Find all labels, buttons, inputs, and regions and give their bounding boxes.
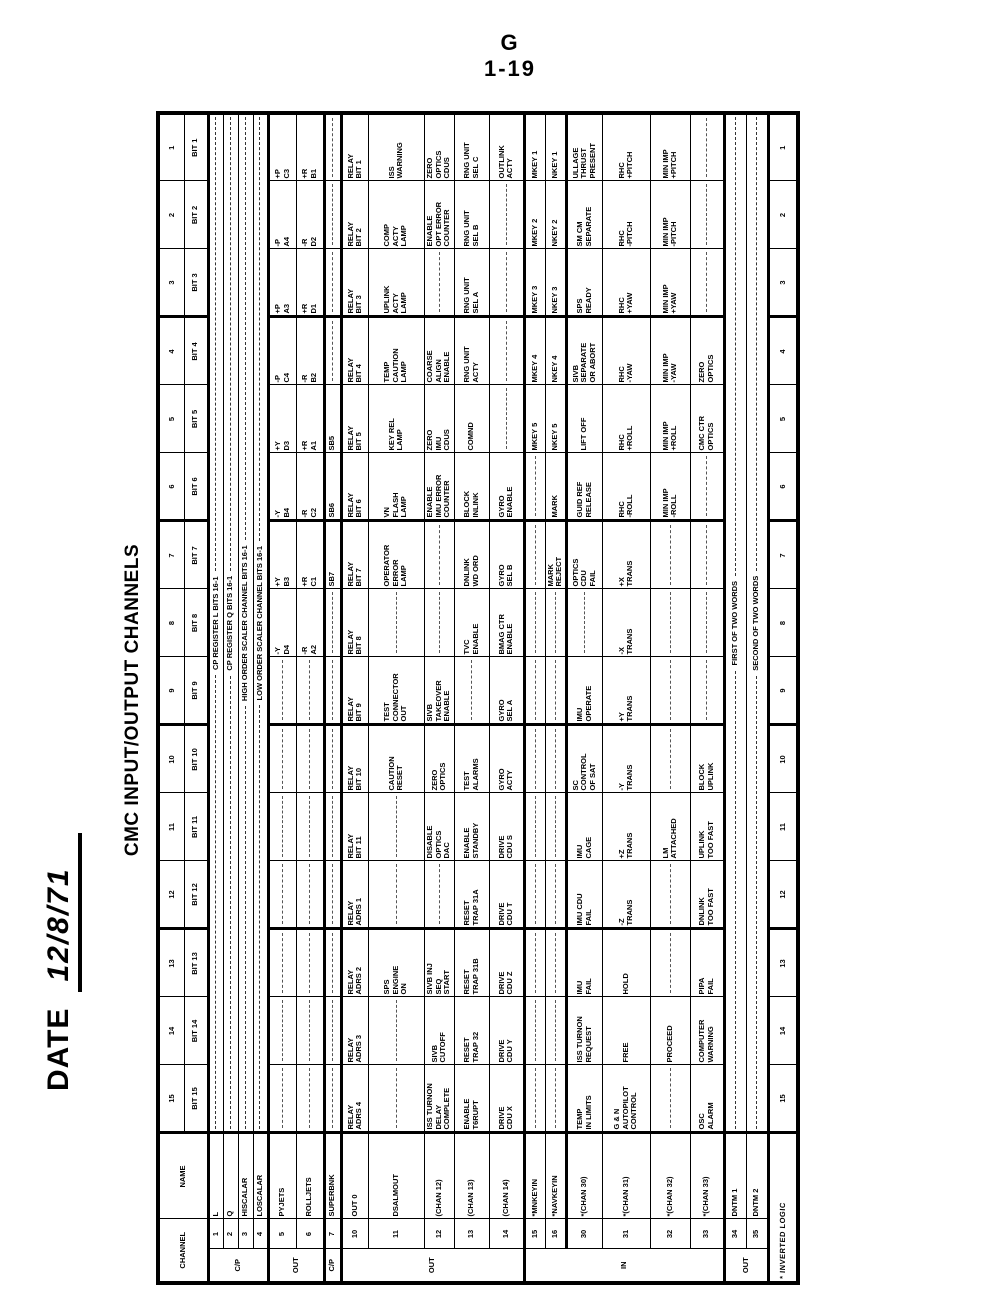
bit-cell: SC CONTROL OF SAT [566, 725, 602, 793]
date-value: 12/8/71 [42, 833, 82, 991]
footer-column-number-cell: 8 [768, 589, 798, 657]
channel-row: 31*(CHAN 31)G & N AUTOPILOT CONTROLFREEH… [602, 113, 650, 1283]
footer-column-number-cell: 4 [768, 317, 798, 385]
bit-cell: +Y B3 [268, 521, 296, 589]
bit-cell: RELAY BIT 6 [341, 453, 368, 521]
bit-header-cell: BIT 6 [184, 453, 208, 521]
bit-cell: ZERO IMU CDUS [424, 385, 454, 453]
column-number-cell: 1 [158, 113, 184, 181]
bit-cell: ZERO OPTICS CDUS [424, 113, 454, 181]
channel-number-cell: 12 [424, 1219, 454, 1249]
bit-cell: UPLINK TOO FAST [690, 793, 724, 861]
bit-cell: MKEY 3 [524, 249, 545, 317]
bit-cell: ENABLE T6RUPT [454, 1065, 489, 1133]
bit-cell: MIN IMP -YAW [650, 317, 690, 385]
channel-number-cell: 3 [238, 1219, 253, 1249]
bit-cell: RHC -ROLL [602, 453, 650, 521]
bit-cell-empty [524, 657, 545, 725]
bit-cell-empty [296, 657, 324, 725]
channel-number-cell: 2 [223, 1219, 238, 1249]
bit-cell-empty [545, 997, 566, 1065]
bit-cell-empty [424, 589, 454, 657]
bit-header-cell: BIT 14 [184, 997, 208, 1065]
bit-cell-empty [324, 793, 341, 861]
bit-header-cell: BIT 15 [184, 1065, 208, 1133]
merged-row-label: SECOND OF TWO WORDS [752, 576, 760, 671]
bit-cell: TEMP CAUTION LAMP [368, 317, 424, 385]
bit-cell: NKEY 1 [545, 113, 566, 181]
channel-group-cell: OUT [724, 1249, 768, 1283]
bit-cell-empty [545, 657, 566, 725]
bit-cell-empty [489, 181, 524, 249]
bit-cell: RHC +PITCH [602, 113, 650, 181]
column-number-cell: 15 [158, 1065, 184, 1133]
column-number-cell: 6 [158, 453, 184, 521]
bit-cell-empty [650, 861, 690, 929]
bit-cell: COMP ACTY LAMP [368, 181, 424, 249]
bit-cell: SIVB SEPARATE OR ABORT [566, 317, 602, 385]
bit-cell: MARK REJECT [545, 521, 566, 589]
bit-cell-empty [524, 453, 545, 521]
bit-cell: RELAY ADRS 2 [341, 929, 368, 997]
bit-cell-empty [324, 929, 341, 997]
footer-column-number-cell: 5 [768, 385, 798, 453]
channel-number-cell: 13 [454, 1219, 489, 1249]
channel-number-cell: 5 [268, 1219, 296, 1249]
bit-cell: MIN IMP +PITCH [650, 113, 690, 181]
bit-cell: UPLINK ACTY LAMP [368, 249, 424, 317]
bit-cell: LIFT OFF [566, 385, 602, 453]
bit-cell-empty [296, 725, 324, 793]
channel-number-cell: 30 [566, 1219, 602, 1249]
bit-cell: -P C4 [268, 317, 296, 385]
bit-header-cell: BIT 2 [184, 181, 208, 249]
bit-cell: DNLINK TOO FAST [690, 861, 724, 929]
bit-cell: TVC ENABLE [454, 589, 489, 657]
footer-column-number-cell: 10 [768, 725, 798, 793]
bit-cell: NKEY 5 [545, 385, 566, 453]
bit-cell-empty [566, 589, 602, 657]
bit-cell-empty [545, 793, 566, 861]
column-number-cell: 3 [158, 249, 184, 317]
bit-cell-empty [324, 113, 341, 181]
channel-name-cell: *(CHAN 30) [566, 1133, 602, 1219]
channel-name-cell: *(CHAN 31) [602, 1133, 650, 1219]
bit-cell-empty [368, 793, 424, 861]
bit-cell: RNG UNIT ACTY [454, 317, 489, 385]
column-number-cell: 4 [158, 317, 184, 385]
bit-cell-empty [324, 589, 341, 657]
footer-column-number-cell: 11 [768, 793, 798, 861]
bit-cell: RHC +YAW [602, 249, 650, 317]
channel-name-cell: HISCALAR [238, 1133, 253, 1219]
bit-cell: -Y TRANS [602, 725, 650, 793]
channel-name-cell: *(CHAN 32) [650, 1133, 690, 1219]
bit-cell: KEY REL LAMP [368, 385, 424, 453]
bit-cell: SB5 [324, 385, 341, 453]
bit-cell: RHC -PITCH [602, 181, 650, 249]
channel-name-cell: DNTM 2 [746, 1133, 768, 1219]
bit-cell-empty [524, 929, 545, 997]
bit-cell: PIPA FAIL [690, 929, 724, 997]
merged-row-cell: HIGH ORDER SCALER CHANNEL BITS 16-1 [238, 113, 253, 1133]
bit-cell: RHC +ROLL [602, 385, 650, 453]
channel-name-cell: *(CHAN 33) [690, 1133, 724, 1219]
bit-cell-empty [524, 725, 545, 793]
bit-cell: GYRO ENABLE [489, 453, 524, 521]
bit-cell: RESET TRAP 32 [454, 997, 489, 1065]
bit-cell: GYRO SEL A [489, 657, 524, 725]
bit-cell-empty [324, 181, 341, 249]
bit-cell: GYRO ACTY [489, 725, 524, 793]
channel-row: 13(CHAN 13)ENABLE T6RUPTRESET TRAP 32RES… [454, 113, 489, 1283]
bit-cell-empty [424, 861, 454, 929]
bit-cell-empty [524, 793, 545, 861]
inverted-logic-footnote: * INVERTED LOGIC [768, 1132, 798, 1284]
column-number-cell: 5 [158, 385, 184, 453]
bit-cell-empty [489, 317, 524, 385]
channel-number-cell: 33 [690, 1219, 724, 1249]
bit-cell: ENABLE OPT ERROR COUNTER [424, 181, 454, 249]
channel-group-cell: OUT [341, 1249, 524, 1283]
bit-cell: MKEY 4 [524, 317, 545, 385]
bit-cell-empty [368, 1065, 424, 1133]
bit-cell: RELAY BIT 5 [341, 385, 368, 453]
channel-group-cell: C/P [324, 1249, 341, 1283]
bit-cell: RELAY BIT 8 [341, 589, 368, 657]
column-number-cell: 14 [158, 997, 184, 1065]
footer-column-number-cell: 12 [768, 861, 798, 929]
bit-cell: MKEY 5 [524, 385, 545, 453]
bit-cell: RELAY BIT 10 [341, 725, 368, 793]
bit-cell-empty [324, 725, 341, 793]
bit-cell: SB6 [324, 453, 341, 521]
channel-row: OUT10OUT 0RELAY ADRS 4RELAY ADRS 3RELAY … [341, 113, 368, 1283]
bit-cell: TEST CONNECTOR OUT [368, 657, 424, 725]
bit-cell: IMU FAIL [566, 929, 602, 997]
bit-cell-empty [268, 657, 296, 725]
bit-cell: MKEY 1 [524, 113, 545, 181]
bit-header-cell: BIT 4 [184, 317, 208, 385]
bit-cell-empty [296, 861, 324, 929]
bit-cell: -R D2 [296, 181, 324, 249]
bit-cell: RELAY BIT 7 [341, 521, 368, 589]
bit-cell: -Y D4 [268, 589, 296, 657]
bit-cell-empty [324, 997, 341, 1065]
channel-number-cell: 1 [208, 1219, 223, 1249]
table-title: CMC INPUT/OUTPUT CHANNELS [122, 535, 144, 865]
bit-cell: MKEY 2 [524, 181, 545, 249]
bit-cell: COMND [454, 385, 489, 453]
bit-cell-empty [690, 113, 724, 181]
bit-cell: GUID REF RELEASE [566, 453, 602, 521]
bit-cell: +X TRANS [602, 521, 650, 589]
merged-row-label: FIRST OF TWO WORDS [731, 581, 739, 666]
channel-row: 2QCP REGISTER Q BITS 16-1 [223, 113, 238, 1283]
bit-cell: DRIVE CDU Z [489, 929, 524, 997]
bit-cell-empty [650, 1065, 690, 1133]
channel-row: 4LOSCALARLOW ORDER SCALER CHANNEL BITS 1… [253, 113, 268, 1283]
channel-number-cell: 32 [650, 1219, 690, 1249]
bit-cell: RELAY BIT 4 [341, 317, 368, 385]
bit-cell-empty [424, 521, 454, 589]
merged-row-label: CP REGISTER L BITS 16-1 [212, 576, 220, 670]
bit-cell: RNG UNIT SEL B [454, 181, 489, 249]
bit-cell: SIVB INJ SEQ START [424, 929, 454, 997]
channel-row: OUT34DNTM 1FIRST OF TWO WORDS [724, 113, 746, 1283]
channel-row: 3HISCALARHIGH ORDER SCALER CHANNEL BITS … [238, 113, 253, 1283]
bit-cell: SB7 [324, 521, 341, 589]
channel-number-cell: 31 [602, 1219, 650, 1249]
footer-column-number-cell: 15 [768, 1065, 798, 1133]
channel-name-cell: (CHAN 12) [424, 1133, 454, 1219]
channel-name-cell: *NAVKEYIN [545, 1133, 566, 1219]
footer-column-number-cell: 13 [768, 929, 798, 997]
bit-cell: OSC ALARM [690, 1065, 724, 1133]
column-number-cell: 2 [158, 181, 184, 249]
channel-name-cell: *MNKEYIN [524, 1133, 545, 1219]
column-number-cell: 9 [158, 657, 184, 725]
bit-cell: RELAY ADRS 1 [341, 861, 368, 929]
channel-row: IN15*MNKEYINMKEY 5MKEY 4MKEY 3MKEY 2MKEY… [524, 113, 545, 1283]
footer-column-number-cell: 7 [768, 521, 798, 589]
channel-name-cell: PYJETS [268, 1133, 296, 1219]
bit-cell: RELAY BIT 9 [341, 657, 368, 725]
bit-cell-empty [324, 657, 341, 725]
bit-cell: ULLAGE THRUST PRESENT [566, 113, 602, 181]
bit-header-cell: BIT 11 [184, 793, 208, 861]
channel-name-cell: DNTM 1 [724, 1133, 746, 1219]
bit-cell: ZERO OPTICS [424, 725, 454, 793]
footer-column-number-cell: 2 [768, 181, 798, 249]
merged-row-cell: FIRST OF TWO WORDS [724, 113, 746, 1133]
channel-number-cell: 7 [324, 1219, 341, 1249]
channel-row: C/P7SUPERBNKSB7SB6SB5 [324, 113, 341, 1283]
bit-cell: NKEY 4 [545, 317, 566, 385]
bit-cell: PROCEED [650, 997, 690, 1065]
channel-number-cell: 4 [253, 1219, 268, 1249]
bit-header-cell: BIT 10 [184, 725, 208, 793]
bit-cell-empty [368, 589, 424, 657]
bit-cell-empty [489, 249, 524, 317]
bit-cell-empty [268, 997, 296, 1065]
channel-name-cell: Q [223, 1133, 238, 1219]
bit-cell: +R A1 [296, 385, 324, 453]
bit-cell: ENABLE IMU ERROR COUNTER [424, 453, 454, 521]
channel-name-cell: (CHAN 13) [454, 1133, 489, 1219]
channel-row: 33*(CHAN 33)OSC ALARMCOMPUTER WARNINGPIP… [690, 113, 724, 1283]
column-number-cell: 11 [158, 793, 184, 861]
bit-cell-empty [324, 249, 341, 317]
scanned-document-page: G 1-19 DATE12/8/71 CMC INPUT/OUTPUT CHAN… [0, 0, 1000, 1300]
channel-number-cell: 34 [724, 1219, 746, 1249]
channel-group-cell: C/P [208, 1249, 268, 1283]
bit-cell: OPTICS CDU FAIL [566, 521, 602, 589]
bit-cell: NKEY 2 [545, 181, 566, 249]
bit-cell: -Y B4 [268, 453, 296, 521]
bit-cell-empty [489, 385, 524, 453]
bit-cell-empty [296, 929, 324, 997]
bit-cell: RESET TRAP 31A [454, 861, 489, 929]
bit-header-cell: BIT 5 [184, 385, 208, 453]
bit-cell: SPS ENGINE ON [368, 929, 424, 997]
channel-row: 32*(CHAN 32)PROCEEDLM ATTACHEDMIN IMP -R… [650, 113, 690, 1283]
bit-cell-empty [650, 521, 690, 589]
column-number-cell: 10 [158, 725, 184, 793]
channel-name-cell: ROLLJETS [296, 1133, 324, 1219]
cmc-io-channels-table: CHANNELNAME151413121110987654321BIT 15BI… [156, 111, 800, 1285]
channel-number-cell: 11 [368, 1219, 424, 1249]
footer-column-number-cell: 6 [768, 453, 798, 521]
bit-cell-empty [650, 725, 690, 793]
bit-cell: LM ATTACHED [650, 793, 690, 861]
bit-cell: IMU CDU FAIL [566, 861, 602, 929]
channel-number-cell: 15 [524, 1219, 545, 1249]
merged-row-label: HIGH ORDER SCALER CHANNEL BITS 16-1 [241, 545, 249, 701]
channel-number-cell: 10 [341, 1219, 368, 1249]
bit-cell-empty [545, 589, 566, 657]
bit-cell: CMC CTR OPTICS [690, 385, 724, 453]
bit-header-cell: BIT 7 [184, 521, 208, 589]
date-line: DATE12/8/71 [42, 833, 76, 1091]
channel-name-cell: (CHAN 14) [489, 1133, 524, 1219]
bit-cell-empty [690, 181, 724, 249]
bit-cell-empty [368, 861, 424, 929]
channel-name-cell: DSALMOUT [368, 1133, 424, 1219]
bit-cell: MIN IMP +ROLL [650, 385, 690, 453]
merged-row-cell: CP REGISTER Q BITS 16-1 [223, 113, 238, 1133]
bit-cell-empty [524, 997, 545, 1065]
bit-cell-empty [690, 657, 724, 725]
merged-row-label: CP REGISTER Q BITS 16-1 [226, 576, 234, 671]
bit-cell-empty [268, 929, 296, 997]
bit-cell: ISS TURNON REQUEST [566, 997, 602, 1065]
channel-name-cell: LOSCALAR [253, 1133, 268, 1219]
column-number-cell: 8 [158, 589, 184, 657]
bit-cell: DISABLE OPTICS DAC [424, 793, 454, 861]
bit-cell-empty [324, 1065, 341, 1133]
channel-row: 12(CHAN 12)ISS TURNON DELAY COMPLETESIVB… [424, 113, 454, 1283]
bit-header-cell: BIT 13 [184, 929, 208, 997]
bit-cell: FREE [602, 997, 650, 1065]
name-header: NAME [158, 1133, 208, 1219]
bit-cell: DNLINK WD ORD [454, 521, 489, 589]
channel-row: C/P1LCP REGISTER L BITS 16-1 [208, 113, 223, 1283]
bit-cell-empty [650, 657, 690, 725]
column-number-cell: 7 [158, 521, 184, 589]
bit-cell: BLOCK INLINK [454, 453, 489, 521]
bit-cell: CAUTION RESET [368, 725, 424, 793]
footer-column-number-cell: 1 [768, 113, 798, 181]
bit-cell-empty [296, 1065, 324, 1133]
bit-cell: MIN IMP -ROLL [650, 453, 690, 521]
bit-cell-empty [690, 249, 724, 317]
bit-cell: DRIVE CDU Y [489, 997, 524, 1065]
merged-row-cell: LOW ORDER SCALER CHANNEL BITS 16-1 [253, 113, 268, 1133]
bit-cell-empty [296, 997, 324, 1065]
bit-cell: TEMP IN LIMITS [566, 1065, 602, 1133]
bit-cell: DRIVE CDU T [489, 861, 524, 929]
bit-cell: IMU OPERATE [566, 657, 602, 725]
footer-column-number-cell: 3 [768, 249, 798, 317]
merged-row-label: LOW ORDER SCALER CHANNEL BITS 16-1 [256, 546, 264, 700]
channel-header: CHANNEL [158, 1219, 208, 1283]
channel-row: 11DSALMOUTSPS ENGINE ONCAUTION RESETTEST… [368, 113, 424, 1283]
bit-cell: BMAG CTR ENABLE [489, 589, 524, 657]
merged-row-cell: SECOND OF TWO WORDS [746, 113, 768, 1133]
bit-cell: RNG UNIT SEL A [454, 249, 489, 317]
bit-cell: TEST ALARMS [454, 725, 489, 793]
bit-cell: ISS TURNON DELAY COMPLETE [424, 1065, 454, 1133]
bit-cell: RNG UNIT SEL C [454, 113, 489, 181]
bit-cell-empty [268, 793, 296, 861]
bit-cell: +R C1 [296, 521, 324, 589]
column-number-cell: 13 [158, 929, 184, 997]
bit-cell: G & N AUTOPILOT CONTROL [602, 1065, 650, 1133]
channel-row: 35DNTM 2SECOND OF TWO WORDS [746, 113, 768, 1283]
bit-cell-empty [650, 929, 690, 997]
channel-number-cell: 16 [545, 1219, 566, 1249]
bit-cell: MARK [545, 453, 566, 521]
footer-column-number-cell: 9 [768, 657, 798, 725]
landscape-sheet: DATE12/8/71 CMC INPUT/OUTPUT CHANNELS CH… [0, 5, 1000, 1293]
channel-group-cell: OUT [268, 1249, 324, 1283]
bit-cell: HOLD [602, 929, 650, 997]
bit-cell: -Z TRANS [602, 861, 650, 929]
bit-cell: BLOCK UPLINK [690, 725, 724, 793]
bit-header-cell: BIT 8 [184, 589, 208, 657]
bit-cell-empty [650, 589, 690, 657]
channel-number-cell: 14 [489, 1219, 524, 1249]
bit-cell: RELAY BIT 1 [341, 113, 368, 181]
bit-cell: -X TRANS [602, 589, 650, 657]
bit-cell-empty [545, 929, 566, 997]
bit-cell: NKEY 3 [545, 249, 566, 317]
bit-cell-empty [690, 453, 724, 521]
bit-cell: SPS READY [566, 249, 602, 317]
bit-cell-empty [368, 997, 424, 1065]
bit-cell: ISS WARNING [368, 113, 424, 181]
channel-name-cell: SUPERBNK [324, 1133, 341, 1219]
bit-cell: SIVB CUTOFF [424, 997, 454, 1065]
bit-cell: +Y TRANS [602, 657, 650, 725]
date-label: DATE [42, 1008, 75, 1091]
channel-row: 14(CHAN 14)DRIVE CDU XDRIVE CDU YDRIVE C… [489, 113, 524, 1283]
bit-cell: DRIVE CDU S [489, 793, 524, 861]
bit-cell: +Y D3 [268, 385, 296, 453]
bit-cell-empty [524, 589, 545, 657]
bit-cell: VN FLASH LAMP [368, 453, 424, 521]
bit-cell: RELAY BIT 3 [341, 249, 368, 317]
footer-column-number-cell: 14 [768, 997, 798, 1065]
bit-cell-empty [690, 589, 724, 657]
bit-cell: RELAY ADRS 3 [341, 997, 368, 1065]
bit-cell: MIN IMP -PITCH [650, 181, 690, 249]
bit-cell: COMPUTER WARNING [690, 997, 724, 1065]
bit-cell-empty [524, 1065, 545, 1133]
bit-cell: RELAY BIT 11 [341, 793, 368, 861]
bit-cell-empty [545, 861, 566, 929]
bit-cell: IMU CAGE [566, 793, 602, 861]
bit-cell: -R C2 [296, 453, 324, 521]
channel-group-cell: IN [524, 1249, 724, 1283]
channel-name-cell: L [208, 1133, 223, 1219]
bit-header-cell: BIT 1 [184, 113, 208, 181]
column-number-cell: 12 [158, 861, 184, 929]
bit-cell-empty [324, 317, 341, 385]
bit-cell: RESET TRAP 31B [454, 929, 489, 997]
bit-cell: RHC -YAW [602, 317, 650, 385]
